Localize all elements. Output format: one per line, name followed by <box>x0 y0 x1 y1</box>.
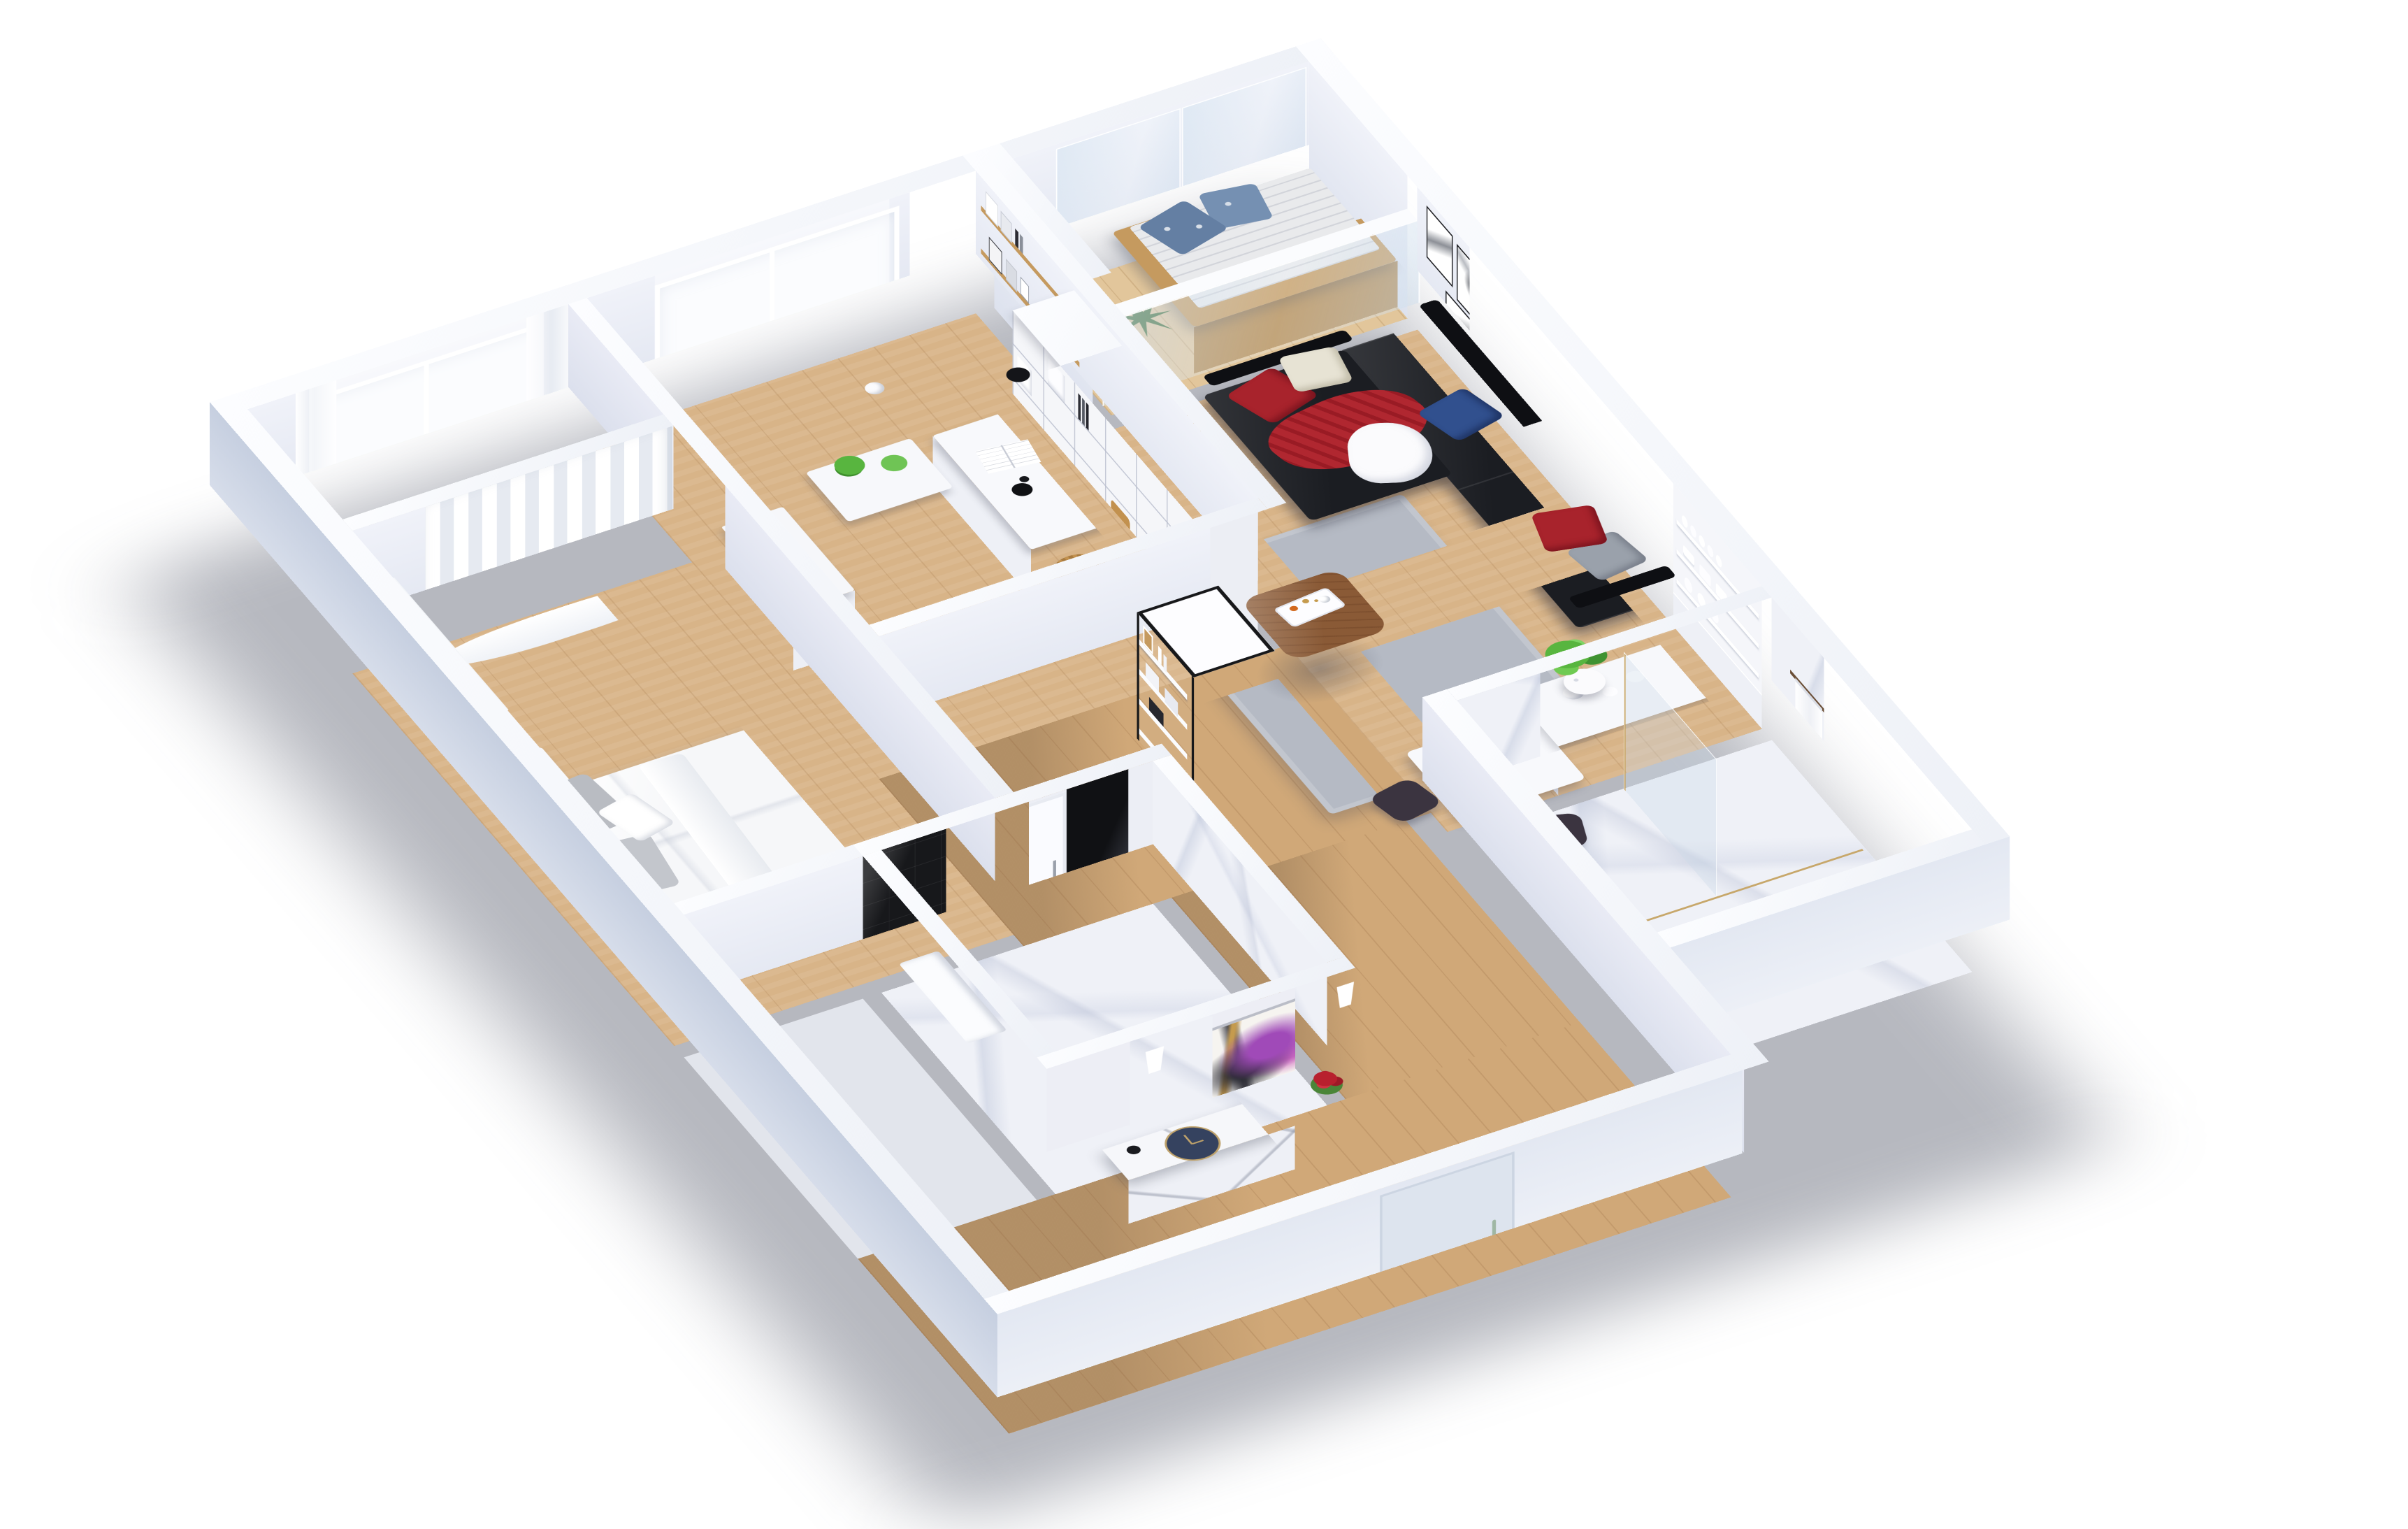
cubby-books <box>1078 393 1081 422</box>
black-glass-panel <box>1067 769 1128 933</box>
wall-sconce <box>1146 1046 1164 1075</box>
shower-fitting-gold <box>1893 804 1896 813</box>
etagere-dark-box <box>1149 697 1164 727</box>
shelf-book <box>1020 234 1023 254</box>
wc-door-handle <box>1053 860 1055 877</box>
entry-door-handle <box>1492 1219 1496 1246</box>
wall-sconce <box>1336 982 1354 1010</box>
shelf-book <box>1015 229 1018 249</box>
clock-hand <box>1192 1140 1204 1144</box>
etagere-vases <box>1158 646 1162 666</box>
etagere-box <box>1146 662 1159 691</box>
